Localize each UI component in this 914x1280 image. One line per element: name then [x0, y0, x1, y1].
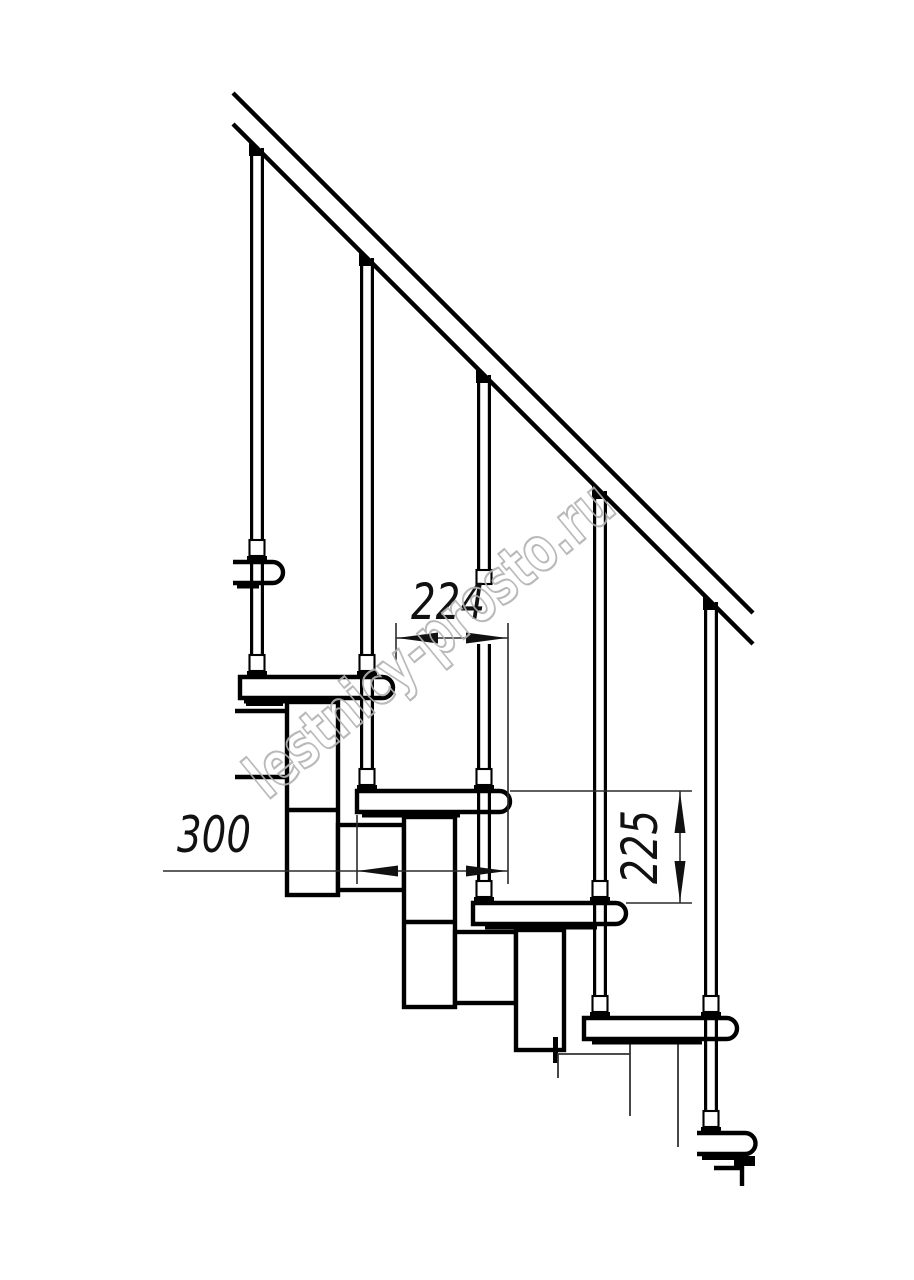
tread-3: [473, 903, 626, 924]
tread-0-stub: [233, 562, 283, 583]
bottom-cut-contour: [714, 1168, 742, 1186]
watermark-text: lestnicy-prosto.ru: [231, 467, 629, 813]
tread-4: [584, 1018, 737, 1039]
baluster-1: [247, 140, 267, 677]
baluster-5: [701, 594, 721, 1133]
tread-2-mount: [362, 811, 460, 818]
spine-neck-1: [338, 825, 404, 890]
tread-5-mount-block: [734, 1156, 755, 1166]
tread-5-mount: [702, 1153, 738, 1160]
spine-neck-2: [455, 932, 516, 1003]
tread-2: [357, 791, 510, 812]
spine-module-2: [404, 817, 455, 1007]
spine-module-3: [516, 930, 564, 1050]
drawing-svg: 224 300 225 lestnicy-prosto.ru: [0, 0, 914, 1280]
tread-0-mount: [237, 582, 259, 589]
tread-3-mount: [485, 923, 597, 930]
tread-5-stub: [697, 1133, 756, 1154]
dimension-step-rise-label: 225: [611, 810, 669, 884]
tread-1-mount-plate: [246, 697, 283, 706]
tread-4-mount: [592, 1038, 702, 1045]
arrow-down-icon: [675, 861, 686, 902]
staircase-technical-drawing: 224 300 225 lestnicy-prosto.ru: [0, 0, 914, 1280]
arrow-right-icon: [466, 866, 507, 877]
spine-module-4-partial: [558, 1043, 678, 1147]
baluster-4: [590, 483, 610, 1018]
arrow-up-icon: [675, 792, 686, 833]
handrail-top-edge: [233, 93, 753, 613]
dimension-tread-depth-label: 300: [177, 806, 251, 864]
